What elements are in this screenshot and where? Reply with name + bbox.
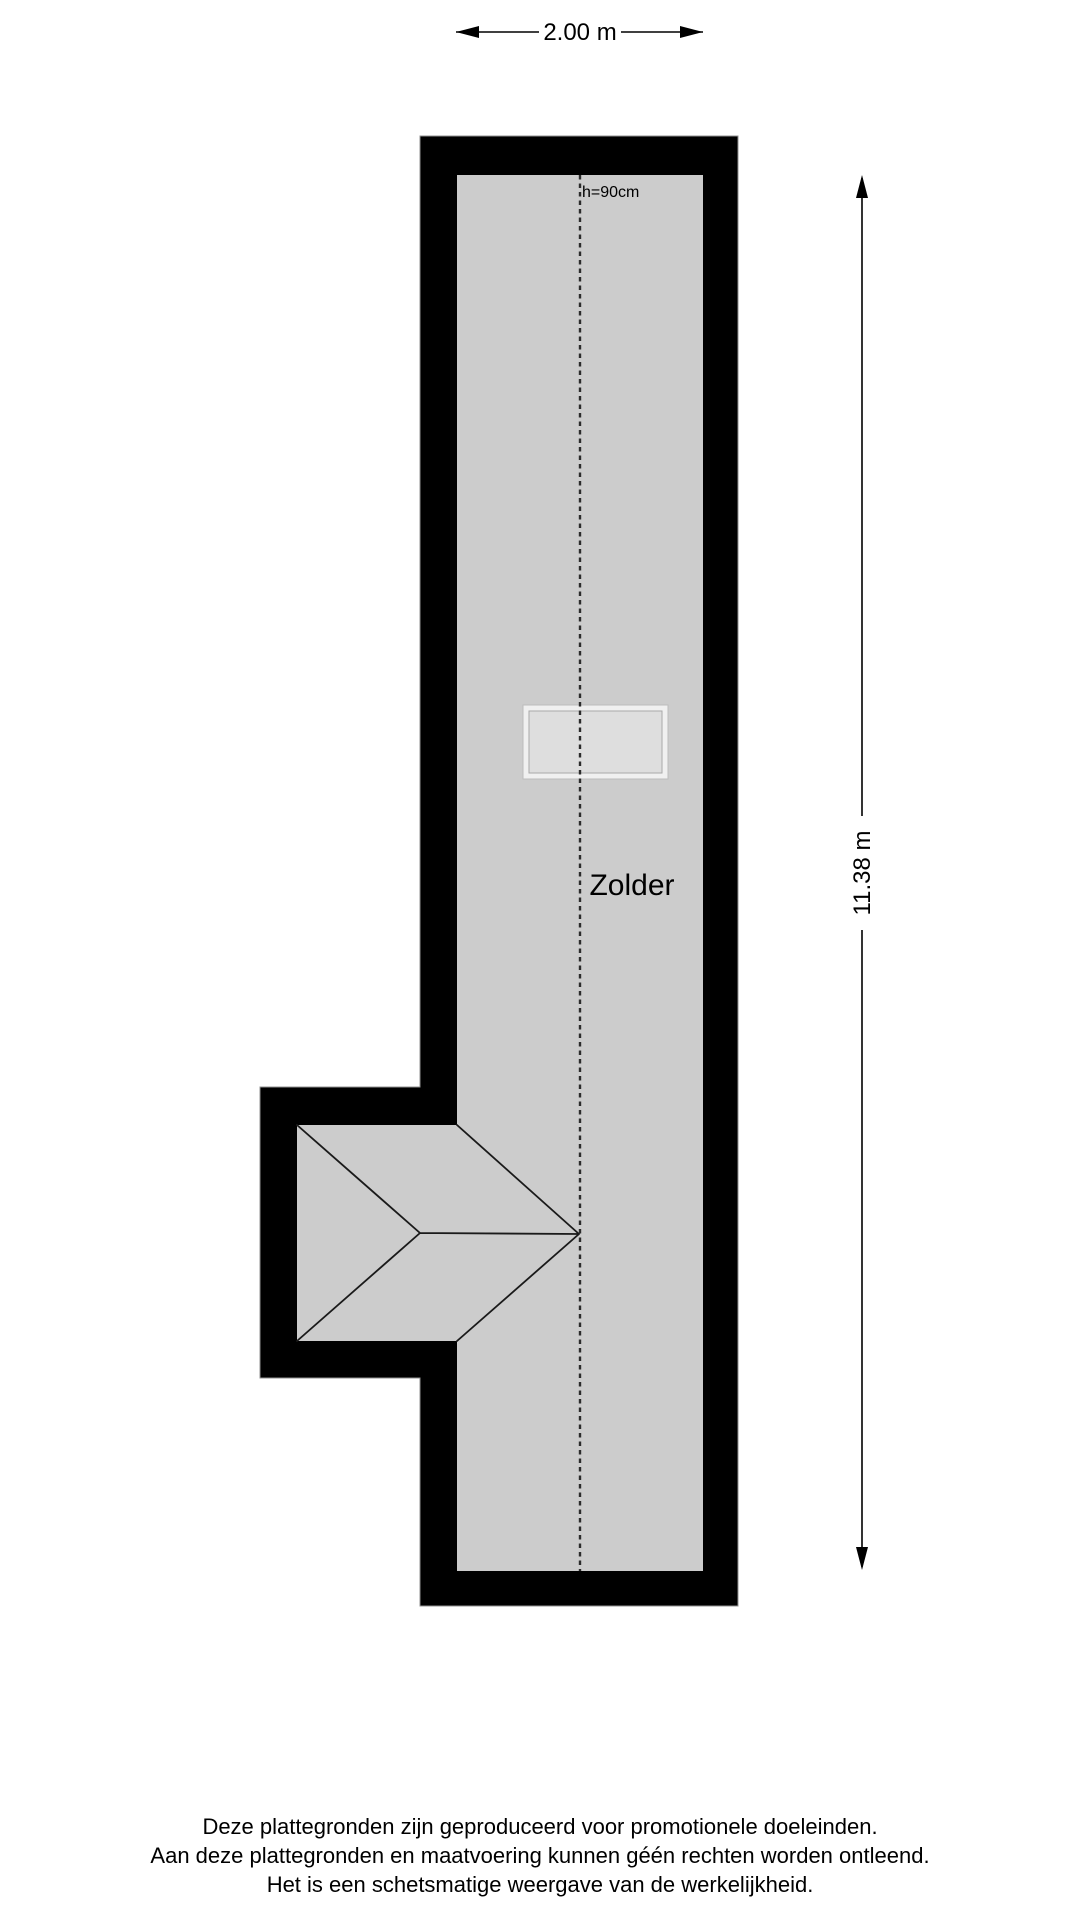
arrow-up-icon [856, 175, 868, 198]
width-dimension-label: 2.00 m [543, 19, 616, 46]
skylight-glass [529, 711, 662, 773]
height-dimension-label: 11.38 m [849, 831, 876, 916]
room-label: Zolder [589, 869, 674, 902]
skylight [523, 705, 668, 779]
height-dimension: 11.38 m [849, 175, 876, 1570]
disclaimer-line-2: Aan deze plattegronden en maatvoering ku… [0, 1841, 1080, 1870]
floorplan-page: 2.00 m 11.38 m h=90cm Zolder Deze platte… [0, 0, 1080, 1920]
disclaimer-line-1: Deze plattegronden zijn geproduceerd voo… [0, 1812, 1080, 1841]
disclaimer: Deze plattegronden zijn geproduceerd voo… [0, 1812, 1080, 1899]
room-height-note: h=90cm [582, 184, 639, 201]
arrow-right-icon [680, 26, 703, 38]
floorplan-canvas: 2.00 m 11.38 m h=90cm Zolder [0, 0, 1080, 1920]
arrow-down-icon [856, 1547, 868, 1570]
arrow-left-icon [456, 26, 479, 38]
width-dimension: 2.00 m [456, 19, 703, 46]
disclaimer-line-3: Het is een schetsmatige weergave van de … [0, 1870, 1080, 1899]
